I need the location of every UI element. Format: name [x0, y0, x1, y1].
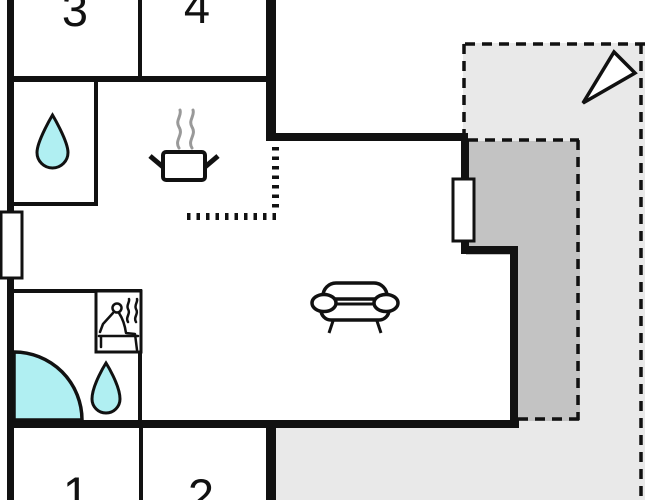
wall-step-horizontal: [461, 246, 518, 254]
wall-room3-room4-divider: [138, 0, 142, 80]
pot-body: [163, 152, 205, 180]
wall-toilet-right: [94, 77, 98, 206]
terrace-open-area: [517, 418, 580, 500]
terrace-open-area: [580, 141, 645, 500]
wall-bedrooms-bottom: [7, 76, 276, 82]
wall-room1-room2-divider: [139, 428, 143, 500]
terrace-covered-area: [466, 141, 580, 255]
window-right: [453, 179, 474, 241]
wall-bottom-horizontal: [7, 420, 519, 428]
room-label-1: 1: [63, 467, 89, 500]
wall-right-outer-bottom: [266, 420, 276, 500]
wall-upper-horizontal: [266, 133, 468, 141]
sofa-armrest-left: [312, 295, 336, 312]
room-label-4: 4: [184, 0, 210, 33]
wall-toilet-bottom: [7, 202, 98, 206]
sauna-icon: [96, 291, 141, 352]
wall-right-outer-top: [266, 0, 276, 140]
sauna-box: [96, 291, 141, 352]
terrace-open-area: [276, 428, 517, 500]
room-label-2: 2: [188, 469, 214, 500]
floor-plan: 3 4 1 2: [0, 0, 645, 500]
terrace-covered-area: [516, 255, 580, 421]
room-label-3: 3: [62, 0, 88, 36]
sofa-armrest-right: [374, 295, 398, 312]
window-left: [1, 212, 22, 278]
wall-right-lower: [510, 246, 518, 428]
